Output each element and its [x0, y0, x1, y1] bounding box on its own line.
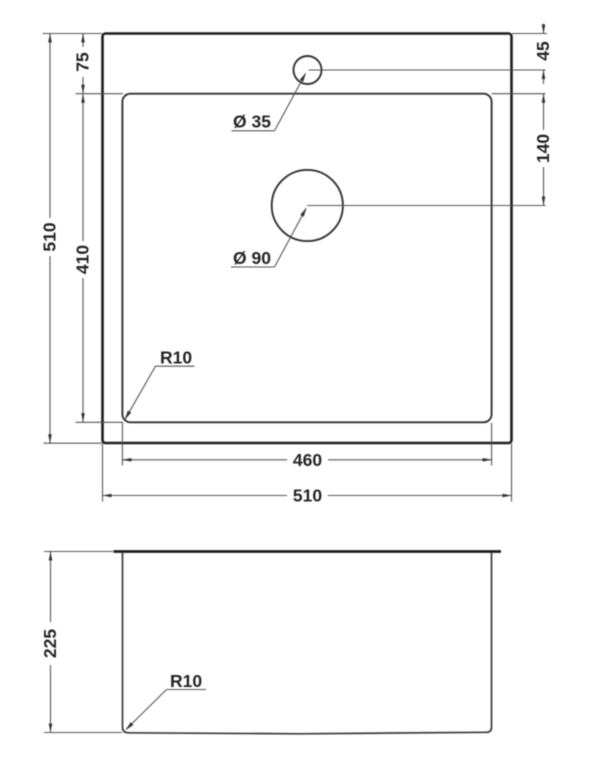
svg-text:75: 75 [73, 52, 93, 72]
svg-text:140: 140 [533, 134, 553, 163]
svg-text:Ø 90: Ø 90 [233, 248, 271, 268]
svg-text:R10: R10 [160, 348, 192, 368]
svg-text:45: 45 [533, 41, 553, 61]
svg-text:460: 460 [293, 450, 322, 470]
svg-text:410: 410 [73, 245, 93, 274]
svg-text:510: 510 [40, 222, 60, 251]
svg-text:Ø 35: Ø 35 [233, 112, 271, 132]
svg-text:510: 510 [293, 486, 322, 506]
svg-text:225: 225 [40, 629, 60, 658]
svg-text:R10: R10 [170, 671, 202, 691]
